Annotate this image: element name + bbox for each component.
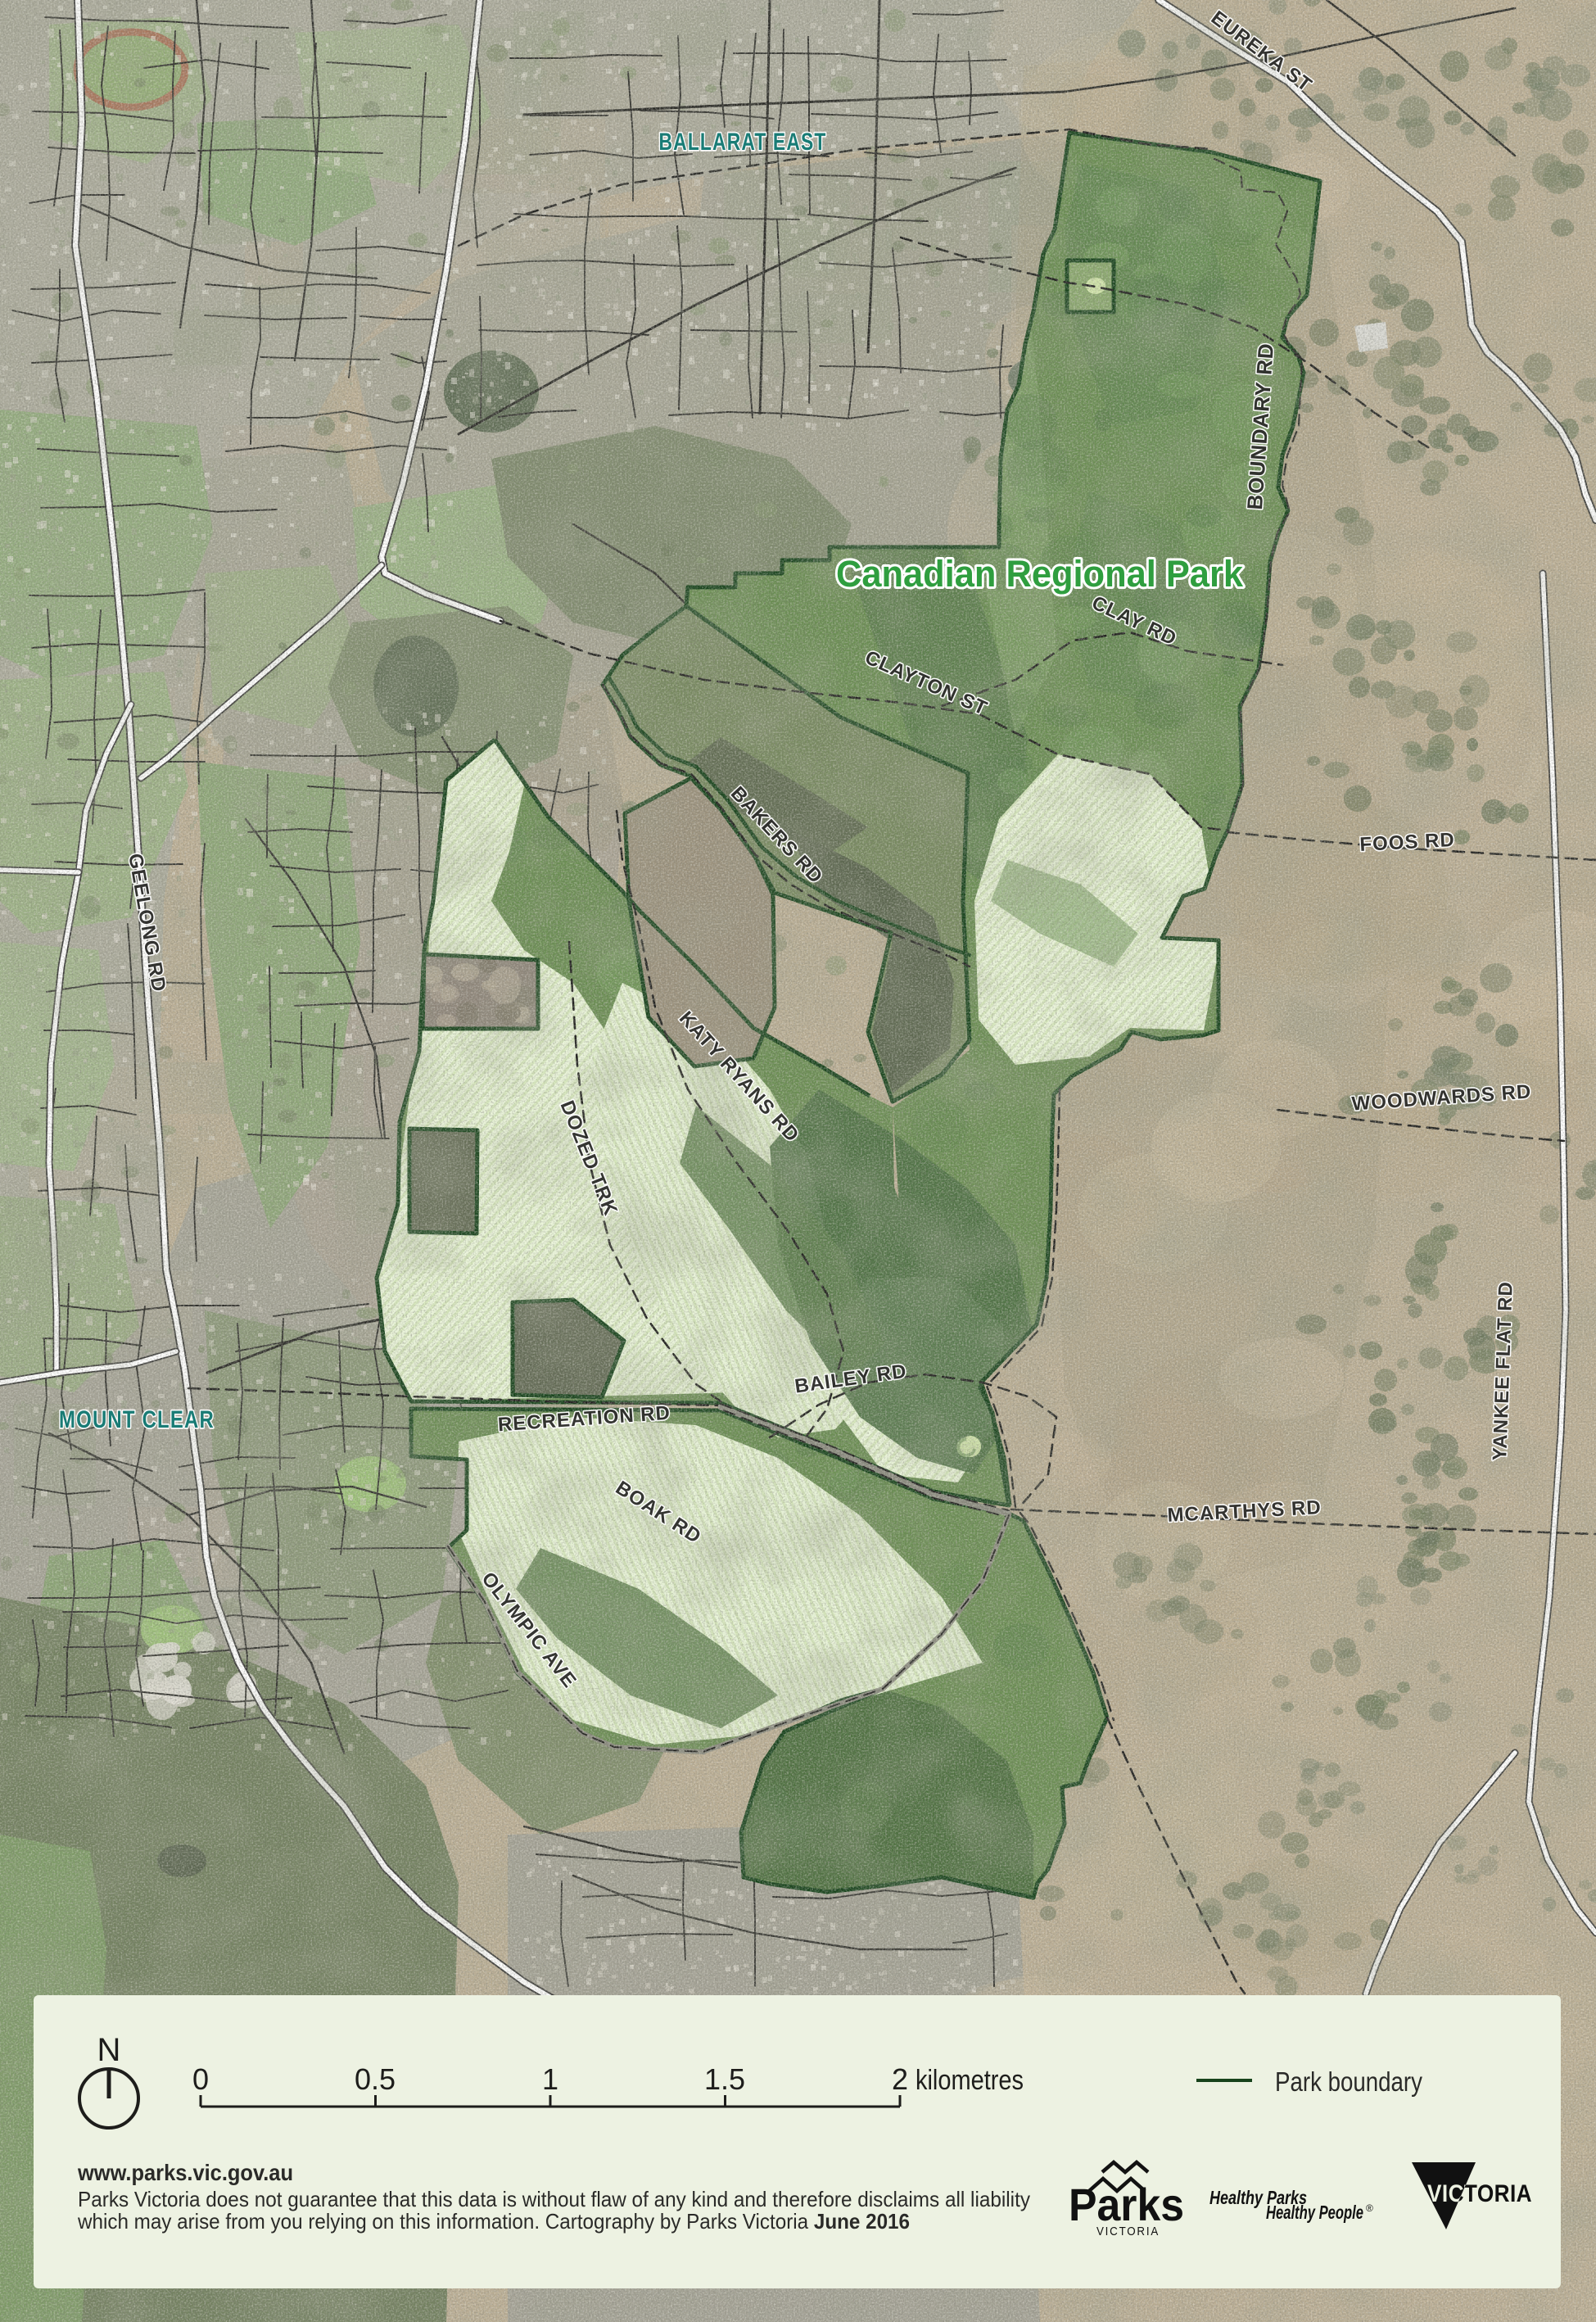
svg-text:MOUNT CLEAR: MOUNT CLEAR	[59, 1406, 215, 1433]
svg-text:kilometres: kilometres	[916, 2065, 1024, 2096]
svg-text:0: 0	[192, 2062, 209, 2096]
svg-text:www.parks.vic.gov.au: www.parks.vic.gov.au	[77, 2160, 293, 2185]
svg-text:0.5: 0.5	[355, 2062, 396, 2096]
svg-text:Parks Victoria does not guaran: Parks Victoria does not guarantee that t…	[78, 2187, 1030, 2211]
svg-text:N: N	[97, 2032, 121, 2068]
svg-text:Parks: Parks	[1069, 2179, 1184, 2230]
svg-text:2: 2	[892, 2062, 908, 2096]
svg-text:1.5: 1.5	[704, 2062, 745, 2096]
svg-text:Park boundary: Park boundary	[1275, 2066, 1422, 2097]
svg-text:1: 1	[542, 2062, 558, 2096]
svg-text:®: ®	[1366, 2202, 1373, 2214]
svg-text:Canadian Regional Park: Canadian Regional Park	[836, 553, 1244, 595]
svg-text:VICTORIA: VICTORIA	[1096, 2225, 1160, 2238]
svg-text:Healthy People: Healthy People	[1266, 2202, 1363, 2223]
svg-text:BALLARAT EAST: BALLARAT EAST	[659, 129, 827, 156]
svg-text:which may arise from you relyi: which may arise from you relying on this…	[77, 2209, 910, 2234]
